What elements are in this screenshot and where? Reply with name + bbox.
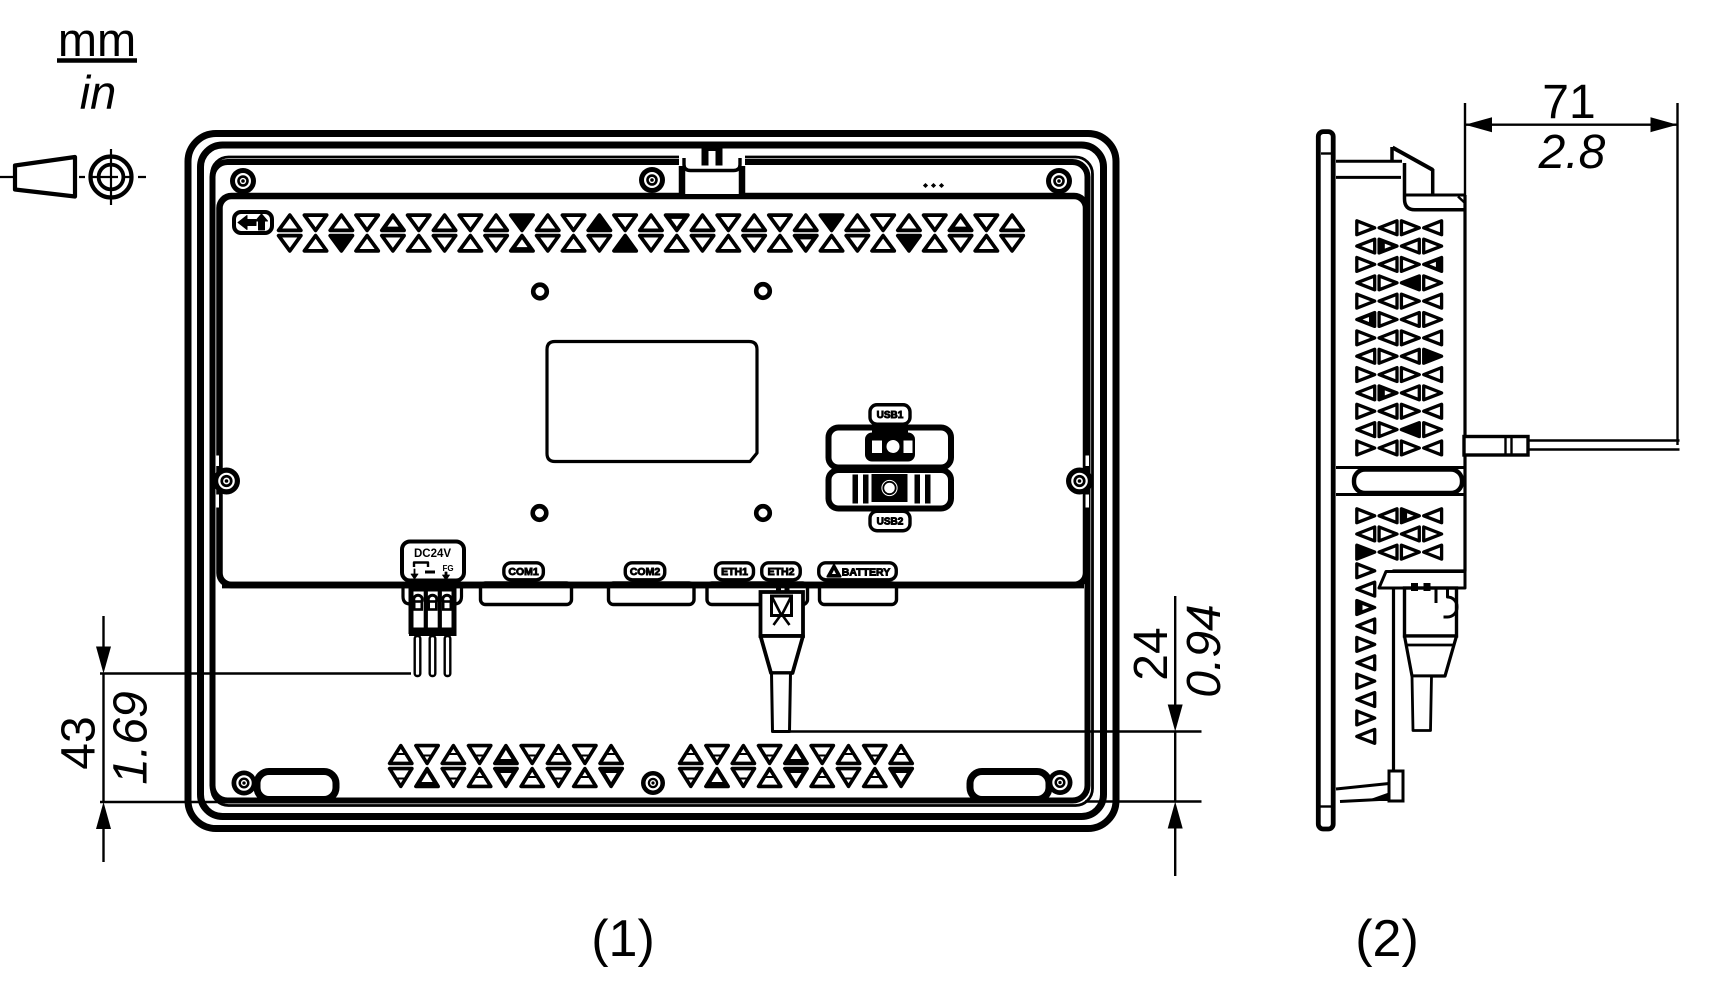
svg-text:USB1: USB1 <box>877 410 904 421</box>
svg-text:BATTERY: BATTERY <box>842 566 890 578</box>
svg-text:43: 43 <box>53 716 106 769</box>
svg-text:24: 24 <box>1125 627 1178 680</box>
svg-text:COM1: COM1 <box>508 566 538 578</box>
svg-text:71: 71 <box>1542 76 1595 129</box>
svg-text:1.69: 1.69 <box>105 691 158 784</box>
svg-text:COM2: COM2 <box>630 566 660 578</box>
svg-text:ETH2: ETH2 <box>768 566 795 578</box>
svg-text:0.94: 0.94 <box>1178 604 1231 697</box>
svg-text:FG: FG <box>442 564 453 573</box>
svg-text:in: in <box>80 66 117 119</box>
svg-text:USB2: USB2 <box>877 517 904 528</box>
svg-text:mm: mm <box>58 13 136 66</box>
svg-text:(1): (1) <box>591 910 655 968</box>
svg-text:2.8: 2.8 <box>1538 126 1606 179</box>
svg-text:DC24V: DC24V <box>414 548 451 560</box>
svg-text:(2): (2) <box>1355 910 1419 968</box>
svg-text:ETH1: ETH1 <box>721 566 748 578</box>
